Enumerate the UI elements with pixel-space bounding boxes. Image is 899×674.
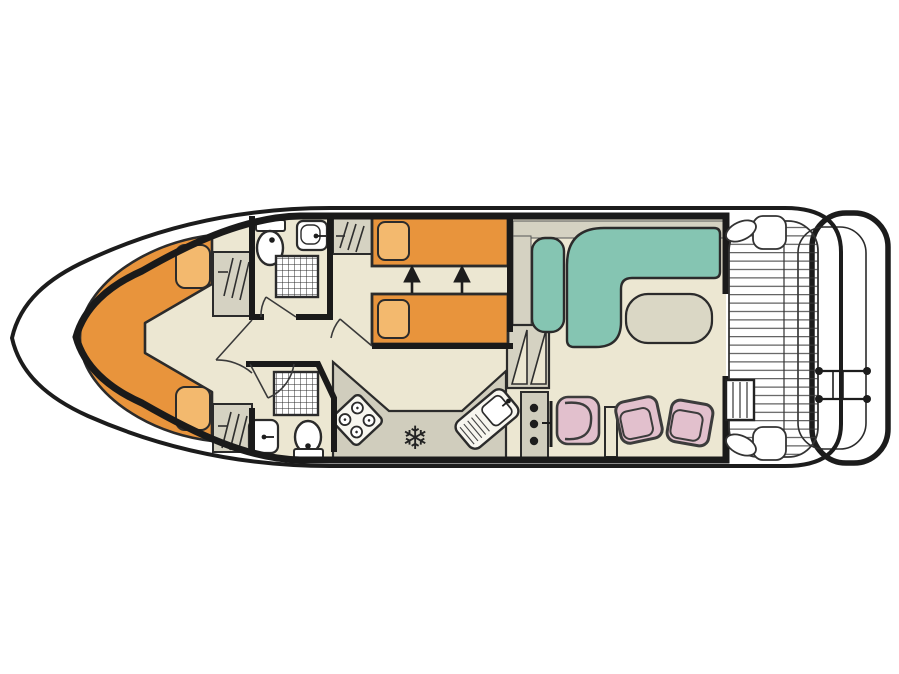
helm-seat — [557, 397, 599, 444]
boat-floor-plan: ❄ — [0, 0, 899, 674]
salon-side-shelf — [513, 236, 531, 331]
companionway-stairs — [507, 325, 549, 388]
floor-plan-canvas: ❄ — [0, 0, 899, 674]
console-knobs-icon — [530, 404, 538, 445]
sink-icon — [297, 221, 327, 250]
dinette-stool — [666, 399, 715, 448]
aft-deck — [723, 216, 818, 460]
deck-steps — [726, 380, 754, 420]
dinette-stool — [614, 395, 664, 445]
shower-icon — [274, 372, 318, 415]
deck-bench-pad — [753, 427, 786, 460]
pillow — [378, 300, 409, 338]
stern-ladder-icon — [815, 367, 871, 403]
pillow — [378, 222, 409, 260]
deck-bench-pad — [753, 216, 786, 249]
salon-chaise-seat — [532, 238, 564, 332]
salon-table — [626, 294, 712, 343]
shower-icon — [276, 256, 318, 297]
fridge-snowflake-icon: ❄ — [402, 419, 429, 457]
toilet-icon — [294, 421, 323, 459]
deck-slats — [729, 221, 818, 457]
